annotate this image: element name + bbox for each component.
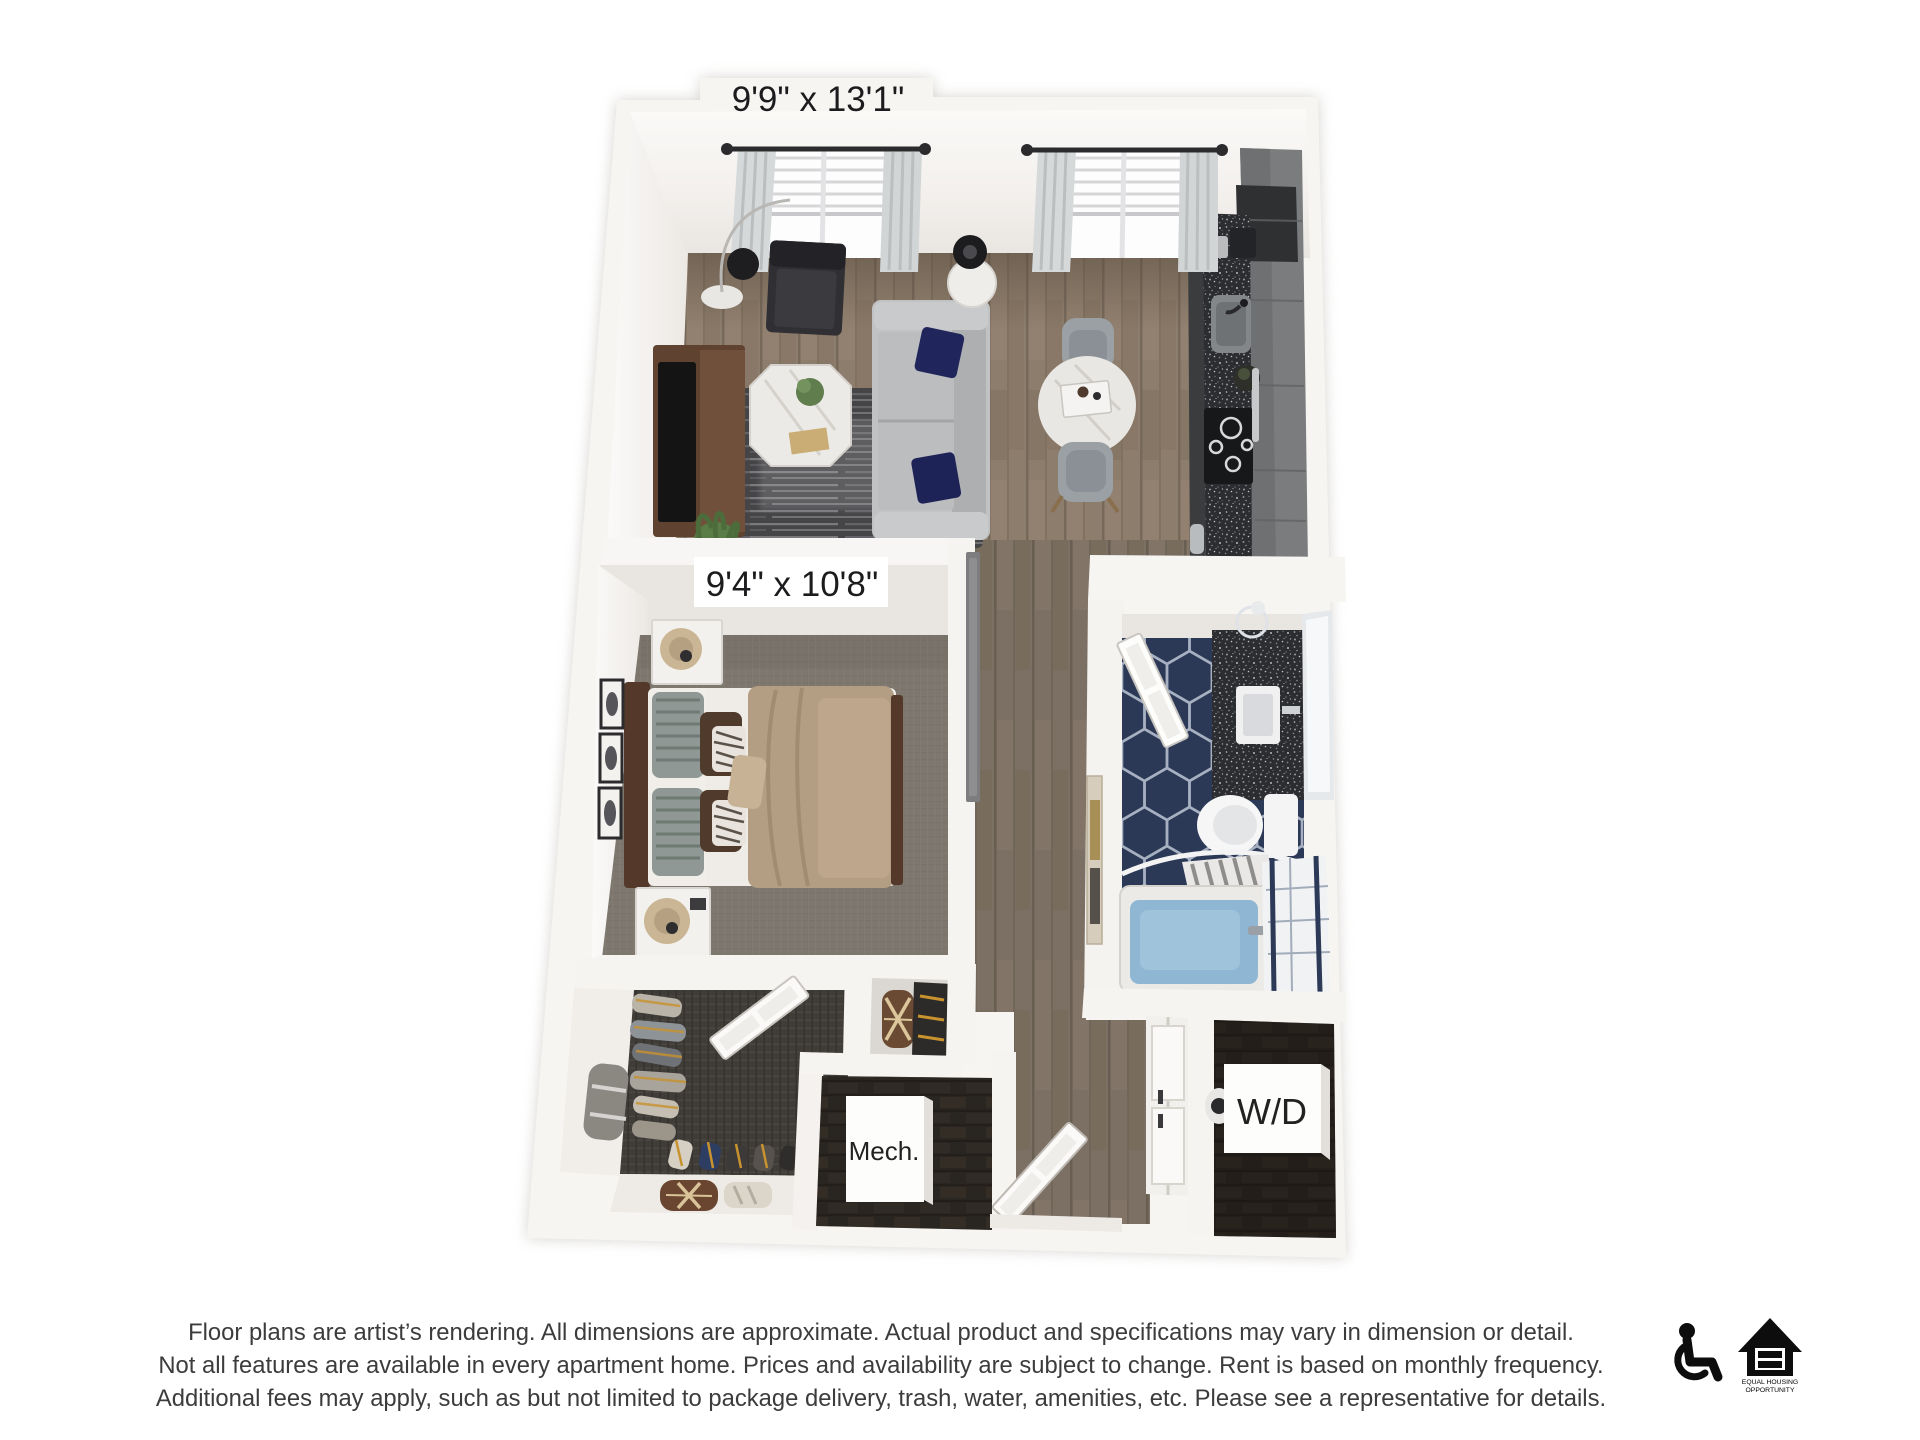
svg-text:Not all features are available: Not all features are available in every … [158,1352,1603,1379]
svg-text:9'9" x 13'1": 9'9" x 13'1" [732,80,905,119]
svg-text:W/D: W/D [1237,1091,1307,1132]
svg-text:OPPORTUNITY: OPPORTUNITY [1746,1387,1795,1394]
svg-text:9'4" x 10'8": 9'4" x 10'8" [706,565,879,604]
svg-text:EQUAL HOUSING: EQUAL HOUSING [1742,1379,1798,1386]
svg-text:Mech.: Mech. [849,1136,920,1166]
svg-text:Floor plans are artist’s rende: Floor plans are artist’s rendering. All … [188,1319,1574,1346]
svg-text:Additional fees may apply, suc: Additional fees may apply, such as but n… [156,1385,1606,1412]
